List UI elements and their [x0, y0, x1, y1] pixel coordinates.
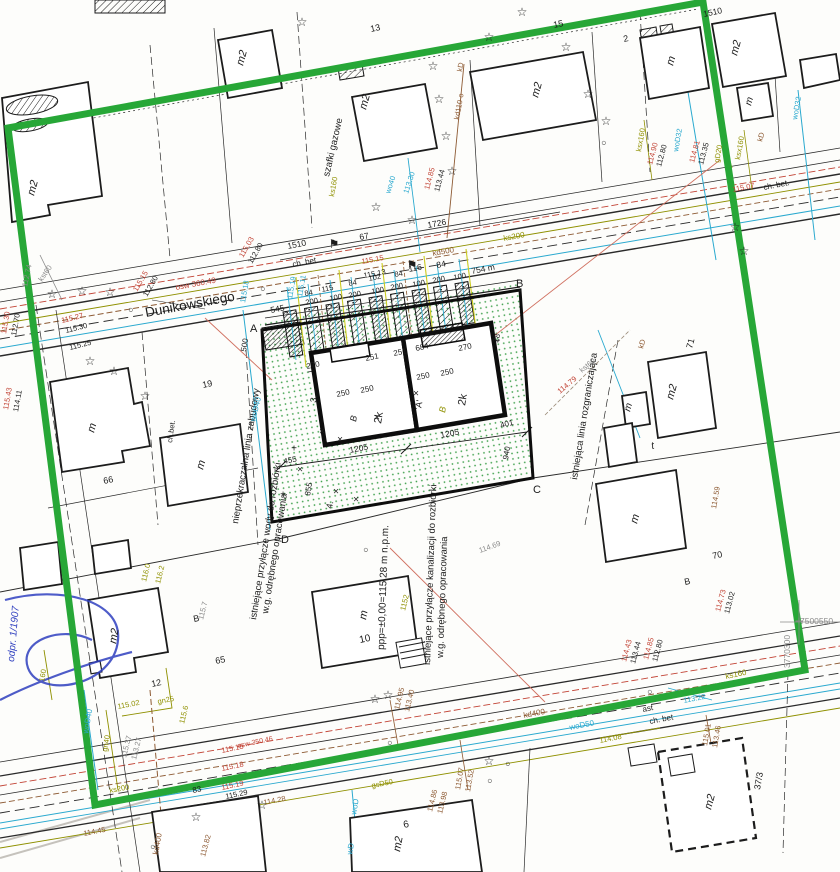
- map-label: woD: [349, 798, 361, 817]
- map-label: wo40: [383, 175, 397, 196]
- tree-icon: ☆: [297, 15, 308, 29]
- shed: [668, 754, 695, 776]
- map-label: 12: [150, 677, 162, 689]
- tree-icon: ☆: [370, 692, 381, 706]
- map-label: 70: [711, 549, 723, 561]
- survey-cross: ×: [353, 495, 359, 506]
- building: [800, 54, 840, 88]
- building: [712, 13, 786, 87]
- map-label: 115.18: [221, 759, 245, 772]
- site-plan-canvas: Dunikowskiegoosw 360.49ch. betch. bet.11…: [0, 0, 840, 872]
- survey-point: ▪: [374, 298, 376, 304]
- map-label: 114.69: [478, 539, 502, 555]
- map-label: 200: [348, 289, 362, 300]
- map-label: 67: [358, 230, 369, 242]
- tree-icon: ☆: [140, 389, 151, 403]
- map-label: kD: [636, 338, 647, 350]
- manhole-icon: ○: [260, 283, 265, 293]
- map-label: osw 350.46: [237, 736, 274, 750]
- survey-point: ▪: [308, 308, 310, 314]
- map-label: 84: [435, 258, 446, 270]
- map-label: 13: [369, 22, 381, 34]
- manhole-icon: ○: [387, 737, 392, 747]
- manhole-icon: ○: [601, 137, 606, 147]
- site-plan-map: Dunikowskiegoosw 360.49ch. betch. bet.11…: [0, 0, 840, 872]
- map-label: kD: [755, 131, 766, 143]
- benchmark-icon: ⚑: [407, 258, 418, 272]
- tree-icon: ☆: [77, 284, 88, 298]
- label-gas-cabinets: szafki gazowe: [321, 117, 345, 178]
- tree-icon: ☆: [371, 200, 382, 214]
- map-label: 66: [102, 474, 114, 486]
- survey-cross: +: [280, 490, 286, 501]
- survey-point: ▪: [462, 285, 464, 291]
- map-label: 112.74: [20, 264, 33, 288]
- tree-icon: ☆: [407, 213, 418, 227]
- survey-cross: ×: [374, 413, 380, 424]
- survey-point: ▪: [330, 304, 332, 310]
- survey-cross: +: [291, 444, 297, 455]
- map-label: kst60: [36, 263, 54, 283]
- map-label: 37/3: [752, 771, 765, 790]
- grid-coordinate-x: 7500550: [800, 616, 833, 626]
- map-label: woD32: [671, 128, 684, 154]
- map-label: 1726: [427, 217, 448, 230]
- handwritten-note: odpr. 1/1907: [6, 605, 22, 662]
- tree-icon: ☆: [105, 285, 116, 299]
- map-label: 114.59: [709, 486, 722, 510]
- shed: [628, 744, 657, 766]
- map-label: gD20: [712, 144, 724, 163]
- map-label: kd500: [432, 245, 456, 258]
- corner-c: C: [533, 484, 541, 496]
- survey-cross: ×: [297, 465, 303, 476]
- tree-icon: ☆: [47, 287, 58, 301]
- tree-icon: ☆: [428, 59, 439, 73]
- tree-icon: ☆: [191, 810, 202, 824]
- survey-point: ▪: [352, 301, 354, 307]
- building: [50, 368, 150, 472]
- survey-cross: ×: [413, 389, 419, 400]
- building: [648, 352, 716, 438]
- map-label: ch. bet.: [763, 178, 790, 192]
- tree-icon: ☆: [434, 92, 445, 106]
- survey-point: ▪: [405, 497, 407, 503]
- map-label: 116.0: [139, 563, 152, 583]
- map-label: gn40: [100, 734, 112, 752]
- map-label: 71: [684, 337, 696, 349]
- map-label: ks160: [327, 176, 339, 197]
- map-label: 100: [412, 278, 426, 289]
- tree-icon: ☆: [257, 798, 268, 812]
- map-label: t: [650, 440, 656, 452]
- tree-icon: ☆: [561, 40, 572, 54]
- manhole-icon: ○: [505, 758, 510, 768]
- map-label: 2: [622, 33, 629, 44]
- map-label: 114.08: [599, 732, 623, 745]
- manhole-icon: ○: [363, 544, 368, 554]
- map-label: 115.07: [732, 181, 756, 194]
- map-label: kD: [455, 61, 466, 72]
- map-label: 116.2: [153, 565, 166, 585]
- map-label: 84: [394, 269, 404, 279]
- tree-icon: ☆: [484, 754, 495, 768]
- map-label: 19: [201, 378, 213, 390]
- building: [152, 796, 266, 872]
- map-label: 113.30: [401, 171, 416, 195]
- tree-icon: ☆: [383, 688, 394, 702]
- map-label: gsD50: [371, 777, 394, 790]
- map-label: 200: [305, 296, 319, 307]
- map-label: ksx160: [733, 135, 746, 160]
- tree-icon: ☆: [517, 5, 528, 19]
- survey-point: ▪: [396, 294, 398, 300]
- map-label: w.g. odrębnego opracowania: [435, 536, 450, 660]
- map-label: 115.7: [196, 601, 209, 621]
- map-label: kd110-o: [452, 93, 465, 121]
- map-label: 100: [453, 271, 467, 282]
- street-name-dunikowskiego: Dunikowskiego: [144, 289, 236, 320]
- tree-icon: ☆: [109, 364, 120, 378]
- manhole-icon: ○: [647, 686, 652, 696]
- tree-icon: ☆: [601, 114, 612, 128]
- survey-cross: ×: [319, 427, 325, 438]
- tree-icon: ☆: [447, 164, 458, 178]
- survey-cross: ×: [333, 487, 339, 498]
- survey-point: ▪: [286, 311, 288, 317]
- tree-icon: ☆: [441, 129, 452, 143]
- map-label: 102: [368, 272, 382, 283]
- map-label: B: [683, 576, 691, 587]
- map-label: 65: [214, 654, 226, 666]
- map-label: 15: [552, 18, 564, 30]
- shed: [20, 542, 62, 590]
- map-label: 115.6: [177, 705, 190, 725]
- map-label: 754 m: [470, 262, 495, 276]
- survey-cross: ×: [337, 435, 343, 446]
- map-label: 500: [239, 337, 250, 352]
- grid-cross-icon: +: [795, 613, 803, 629]
- grid-coordinate-y: 3770300: [782, 635, 792, 668]
- corner-a: A: [250, 323, 258, 335]
- tree-icon: ☆: [583, 87, 594, 101]
- map-label: 100: [371, 285, 385, 296]
- pencil-scribbles: [0, 800, 150, 858]
- map-label: 84: [348, 278, 358, 288]
- building: [604, 423, 637, 467]
- map-label: ksx160: [634, 127, 647, 152]
- manhole-icon: ○: [150, 841, 155, 851]
- manhole-icon: ○: [487, 775, 492, 785]
- survey-point: ▪: [418, 291, 420, 297]
- manhole-icon: ○: [128, 304, 133, 314]
- tree-icon: ☆: [85, 354, 96, 368]
- tree-icon: ☆: [739, 244, 750, 258]
- map-label: 100: [329, 292, 343, 303]
- map-label: 115.02: [117, 698, 141, 711]
- survey-point: ▪: [440, 288, 442, 294]
- building: [350, 800, 482, 872]
- map-label: 114.45: [83, 825, 107, 838]
- map-label: 200: [390, 281, 404, 292]
- map-label: ks200: [503, 230, 526, 243]
- tree-icon: ☆: [730, 220, 741, 234]
- map-label: 115.25: [68, 338, 92, 352]
- benchmark-icon: ⚑: [329, 237, 340, 251]
- map-label: 1510: [286, 237, 307, 250]
- map-label: 200: [432, 274, 446, 285]
- map-label: gn25: [157, 694, 175, 706]
- tree-icon: ☆: [484, 30, 495, 44]
- shed: [92, 540, 131, 574]
